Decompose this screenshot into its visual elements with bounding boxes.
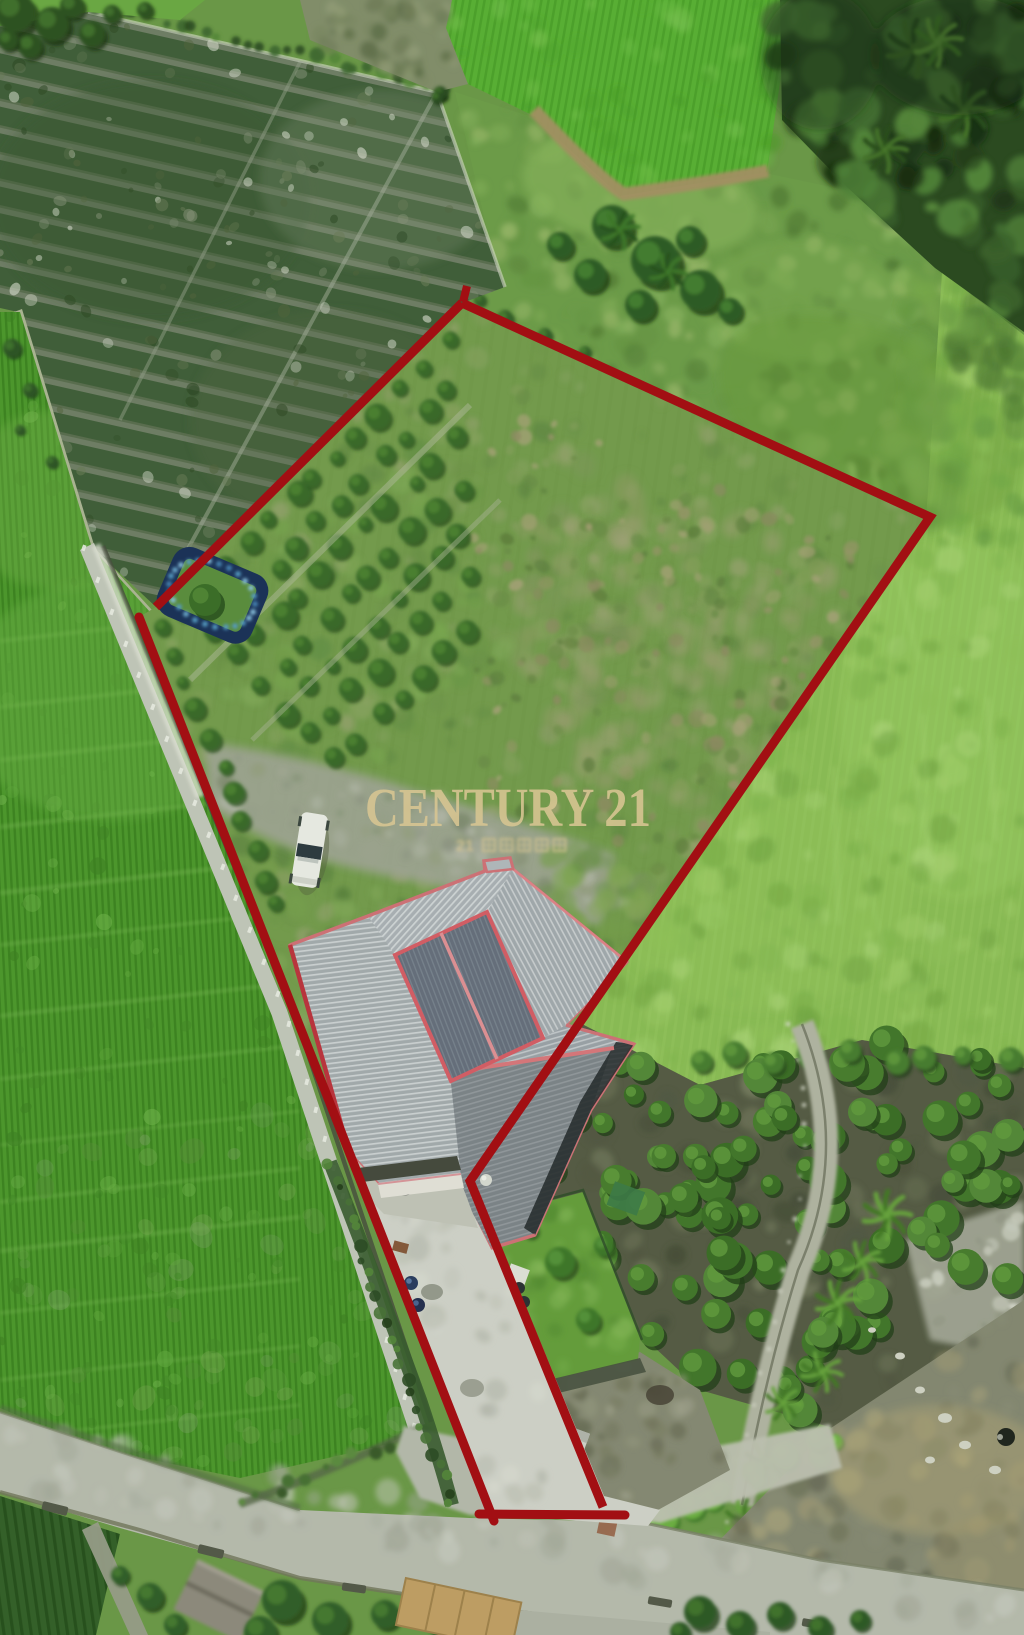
svg-text:CENTURY 21: CENTURY 21 <box>365 777 651 838</box>
svg-text:21: 21 <box>456 838 474 855</box>
